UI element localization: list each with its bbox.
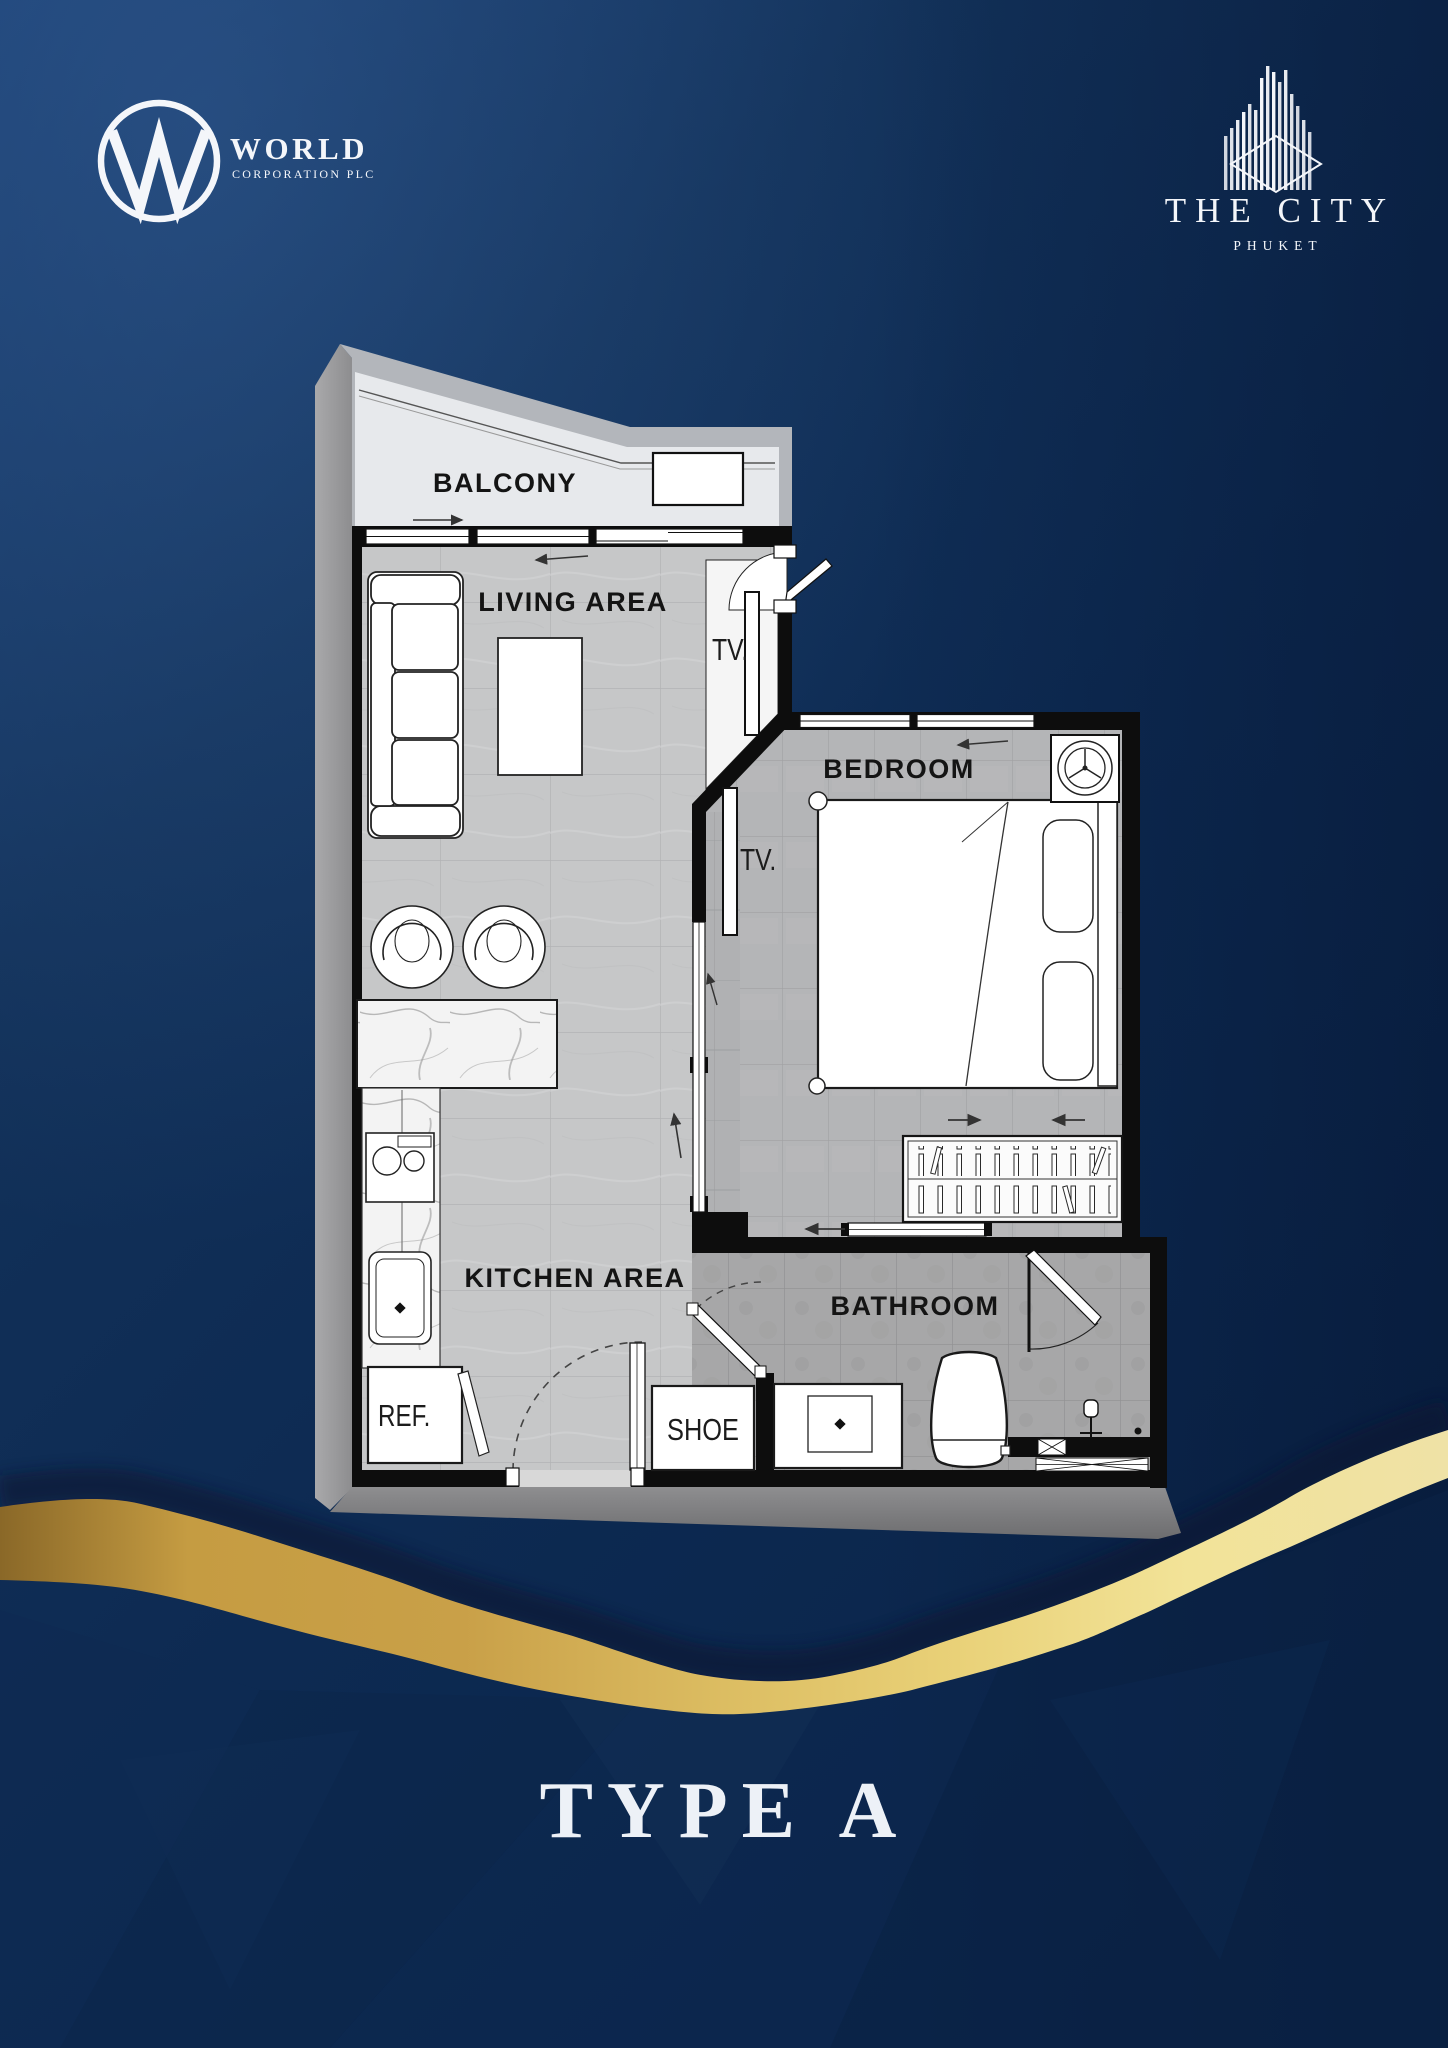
city-logo-sub: PHUKET [1233,238,1322,253]
sink [369,1252,431,1344]
bedroom-label: BEDROOM [823,754,975,784]
vanity [774,1384,902,1468]
bed [809,792,1117,1094]
city-logo-name: THE CITY [1165,191,1395,230]
pillow-2 [1043,962,1093,1080]
armchair-1 [371,906,453,988]
world-logo-sub: CORPORATION PLC [232,167,376,181]
kitchen-counter [362,1088,440,1368]
sofa [368,572,463,838]
tv-bedroom [723,788,737,935]
dining-counter [357,1000,557,1088]
type-title: TYPE A [540,1767,911,1855]
fan-coil-unit [1051,735,1119,802]
fridge-label: REF. [378,1398,430,1433]
toilet [931,1352,1010,1467]
tv-living-label: TV. [712,632,748,666]
plan-extrusion-left [315,344,352,1510]
bathroom-label: BATHROOM [831,1291,1000,1321]
headboard [1098,802,1117,1086]
living-label: LIVING AREA [478,587,668,617]
kitchen-label: KITCHEN AREA [464,1263,685,1293]
balcony-label: BALCONY [433,468,577,498]
poster-art: BALCONY LIVING AREA BEDROOM KITCHEN AREA… [0,0,1448,2048]
floorplan-poster: BALCONY LIVING AREA BEDROOM KITCHEN AREA… [0,0,1448,2048]
armchair-2 [463,906,545,988]
shoe-label: SHOE [667,1413,739,1448]
coffee-table [498,638,582,775]
pillow-1 [1043,820,1093,932]
wardrobe [903,1136,1122,1222]
tv-bedroom-label: TV. [740,842,776,876]
entrance-threshold [519,1470,631,1487]
world-logo-name: WORLD [230,131,368,166]
balcony-ac-unit [653,453,743,505]
